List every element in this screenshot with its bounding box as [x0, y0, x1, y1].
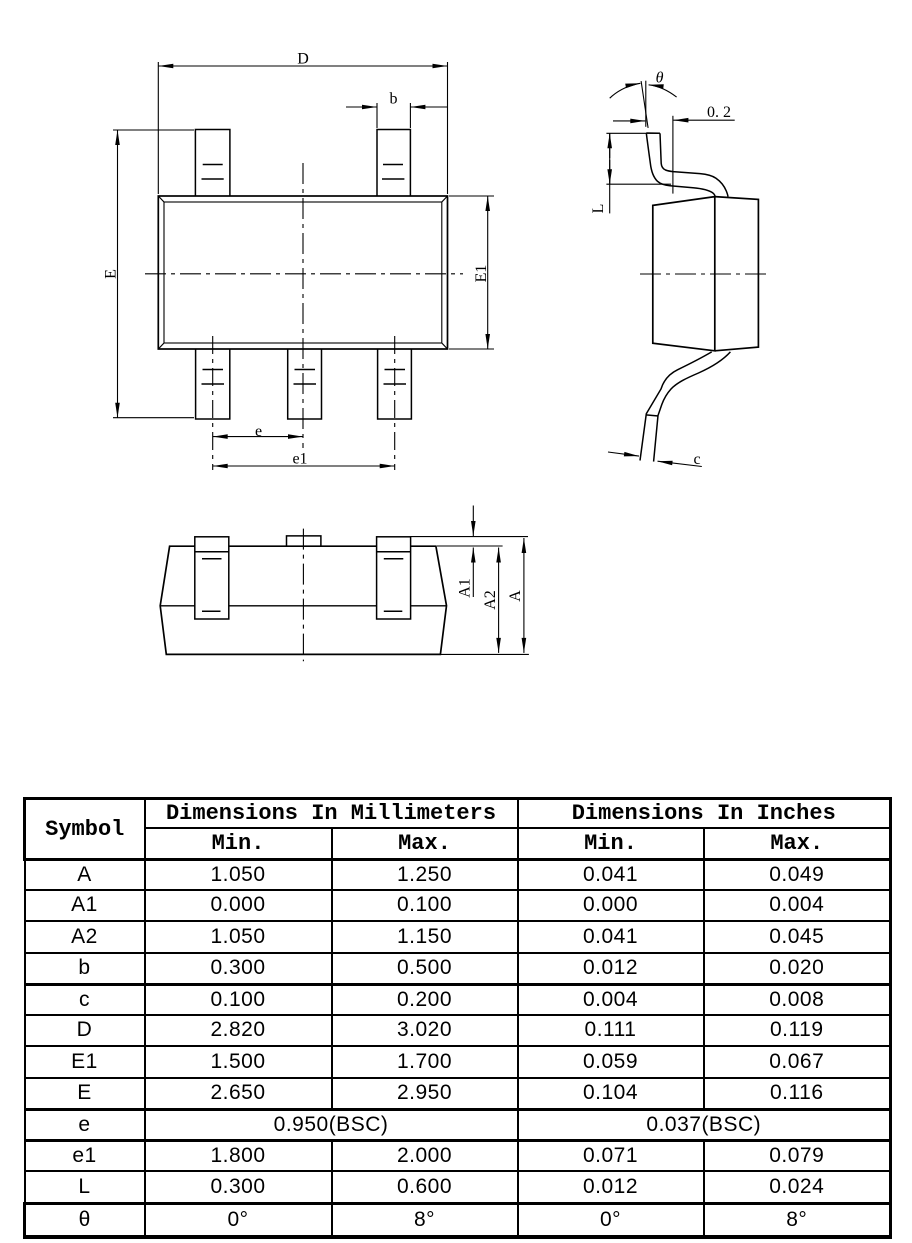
svg-text:e: e: [255, 423, 262, 440]
svg-text:b: b: [390, 91, 398, 108]
svg-text:c: c: [693, 451, 700, 468]
svg-text:E: E: [103, 269, 120, 279]
svg-text:θ: θ: [656, 70, 664, 87]
svg-text:A2: A2: [482, 590, 499, 610]
svg-text:A: A: [507, 590, 524, 602]
svg-text:e1: e1: [292, 451, 307, 468]
svg-text:0. 2: 0. 2: [707, 104, 731, 121]
svg-text:E1: E1: [473, 265, 490, 283]
svg-text:D: D: [297, 51, 309, 68]
svg-text:A1: A1: [457, 578, 474, 598]
svg-text:L: L: [590, 204, 607, 214]
